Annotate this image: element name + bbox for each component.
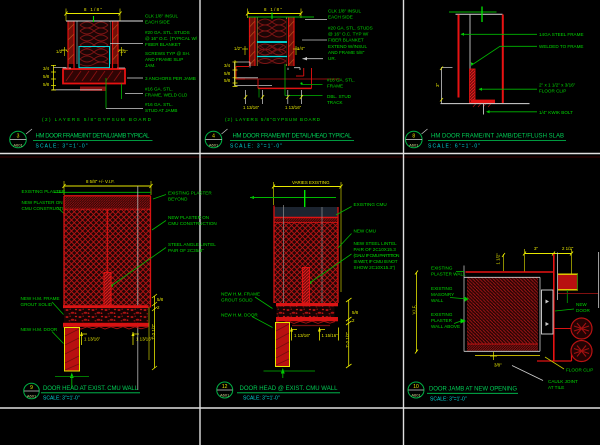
svg-text:FIBER BLANKET: FIBER BLANKET xyxy=(145,42,181,47)
svg-text:NEW H.M. DOOR: NEW H.M. DOOR xyxy=(21,327,58,332)
svg-text:7'-2 1/2": 7'-2 1/2" xyxy=(151,323,156,340)
svg-text:NEW PLASTER ON: NEW PLASTER ON xyxy=(22,200,63,205)
svg-text:JAM.: JAM. xyxy=(145,63,155,68)
svg-text:GROUT SOLID: GROUT SOLID xyxy=(221,298,253,303)
svg-text:UR.: UR. xyxy=(328,56,336,61)
svg-text:3/4: 3/4 xyxy=(224,63,231,68)
svg-text:1/4": 1/4" xyxy=(297,46,305,51)
svg-text:CMU CONSTRUCTION: CMU CONSTRUCTION xyxy=(168,221,217,226)
svg-text:#16 GA. STL.: #16 GA. STL. xyxy=(327,78,355,83)
svg-text:EXISTING PLASTER: EXISTING PLASTER xyxy=(22,189,66,194)
svg-text:FRAME, WELD CLD: FRAME, WELD CLD xyxy=(145,93,188,98)
svg-text:FIBER BLANKET: FIBER BLANKET xyxy=(328,38,364,43)
svg-text:4: 4 xyxy=(212,134,215,140)
svg-text:1 13/16": 1 13/16" xyxy=(84,337,101,342)
svg-text:NEW H.M. FRAME: NEW H.M. FRAME xyxy=(221,292,260,297)
svg-text:1 1/2": 1 1/2" xyxy=(496,253,501,265)
svg-text:8 5/8" +/- V.I.F.: 8 5/8" +/- V.I.F. xyxy=(86,179,115,184)
svg-text:5/8: 5/8 xyxy=(43,82,50,87)
svg-text:2" x 1 1/2" x 3/16": 2" x 1 1/2" x 3/16" xyxy=(539,83,576,88)
svg-text:CLK 1/8" INSUL: CLK 1/8" INSUL xyxy=(145,14,178,19)
svg-text:V.I.F.: V.I.F. xyxy=(412,305,417,315)
svg-text:EACH SIDE: EACH SIDE xyxy=(145,20,170,25)
svg-text:5/8: 5/8 xyxy=(43,74,50,79)
svg-text:2 1/2": 2 1/2" xyxy=(562,246,574,251)
svg-text:A601: A601 xyxy=(409,143,419,148)
svg-text:WALL: WALL xyxy=(431,298,444,303)
svg-text:STEEL ANGLE LINTEL: STEEL ANGLE LINTEL xyxy=(168,242,216,247)
svg-text:SCALE: 3"=1'-0": SCALE: 3"=1'-0" xyxy=(430,397,467,403)
svg-text:#16 GA. STL.: #16 GA. STL. xyxy=(145,87,173,92)
svg-text:3": 3" xyxy=(534,246,538,251)
svg-text:14GA STEEL FRAME: 14GA STEEL FRAME xyxy=(539,32,584,37)
svg-text:SCREWS TYP @ SH.: SCREWS TYP @ SH. xyxy=(145,51,190,56)
svg-text:3 ANCHORS PER JAMB: 3 ANCHORS PER JAMB xyxy=(145,76,196,81)
svg-text:10: 10 xyxy=(413,384,419,390)
svg-text:GROUT SOLID: GROUT SOLID xyxy=(21,302,53,307)
svg-text:EXISTING PLASTER: EXISTING PLASTER xyxy=(168,191,212,196)
svg-text:WELDED TO FRAME: WELDED TO FRAME xyxy=(539,44,584,49)
svg-text:3/8": 3/8" xyxy=(494,363,502,368)
svg-text:MASONRY: MASONRY xyxy=(431,292,454,297)
svg-text:5/8: 5/8 xyxy=(352,310,359,315)
svg-text:5/8: 5/8 xyxy=(224,71,231,76)
svg-text:A601: A601 xyxy=(27,394,37,399)
svg-text:EXISTING CMU: EXISTING CMU xyxy=(354,202,387,207)
svg-text:@ 16" O.C. TYP W/: @ 16" O.C. TYP W/ xyxy=(328,32,369,37)
svg-text:WALL ABOVE: WALL ABOVE xyxy=(431,324,460,329)
svg-text:TRACK: TRACK xyxy=(327,100,344,105)
svg-text:DOOR JAMB AT NEW OPENING: DOOR JAMB AT NEW OPENING xyxy=(429,387,517,393)
svg-text:IS WET, IF CMU IS NOT: IS WET, IF CMU IS NOT xyxy=(354,259,398,264)
svg-text:NEW CMU: NEW CMU xyxy=(354,229,376,234)
svg-text:SCALE: 6"=1'-0": SCALE: 6"=1'-0" xyxy=(428,144,480,150)
svg-text:AND FRAME SLIP: AND FRAME SLIP xyxy=(145,57,183,62)
svg-text:DOOR: DOOR xyxy=(576,308,590,313)
svg-text:FRAME: FRAME xyxy=(327,84,343,89)
svg-text:(2) LAYERS 5/8"GYPSUM BOARD: (2) LAYERS 5/8"GYPSUM BOARD xyxy=(225,117,321,122)
svg-text:SCALE: 3"=1'-0": SCALE: 3"=1'-0" xyxy=(243,396,280,402)
svg-text:SHOW 2C10X15.3"): SHOW 2C10X15.3") xyxy=(354,265,396,270)
svg-text:NEW: NEW xyxy=(576,302,587,307)
svg-text:A601: A601 xyxy=(220,393,230,398)
svg-text:NEW H.M. FRAME: NEW H.M. FRAME xyxy=(21,296,60,301)
svg-text:A601: A601 xyxy=(209,143,219,148)
svg-text:EXISTING: EXISTING xyxy=(431,286,453,291)
svg-text:(2) LAYERS 5/8"GYPSUM BOARD: (2) LAYERS 5/8"GYPSUM BOARD xyxy=(42,117,152,122)
svg-text:VARIES EXISTING: VARIES EXISTING xyxy=(292,180,330,185)
svg-text:NEW PLASTER ON: NEW PLASTER ON xyxy=(168,215,209,220)
svg-text:1/2": 1/2" xyxy=(234,46,242,51)
svg-text:EACH SIDE: EACH SIDE xyxy=(328,15,353,20)
svg-text:FLOOR CLIP: FLOOR CLIP xyxy=(566,368,593,373)
svg-text:HM DOOR FRAME/INT JAMB/DET/FLU: HM DOOR FRAME/INT JAMB/DET/FLUSH SLAB xyxy=(431,134,564,140)
svg-text:1/4" KWIK BOLT: 1/4" KWIK BOLT xyxy=(539,110,573,115)
svg-text:7'-2 1/2": 7'-2 1/2" xyxy=(345,331,350,348)
svg-text:A601: A601 xyxy=(411,393,421,398)
svg-text:#20 GA. STL. STUDS: #20 GA. STL. STUDS xyxy=(328,26,373,31)
svg-text:12: 12 xyxy=(222,384,228,390)
svg-text:5/8: 5/8 xyxy=(157,297,164,302)
svg-text:STUD AT JAMB: STUD AT JAMB xyxy=(145,108,178,113)
svg-text:AT TILE: AT TILE xyxy=(548,385,564,390)
svg-text:5/8: 5/8 xyxy=(224,78,231,83)
svg-text:8: 8 xyxy=(412,134,415,140)
svg-text:FLOOR CLIP: FLOOR CLIP xyxy=(539,89,566,94)
svg-text:PLASTER WALL: PLASTER WALL xyxy=(431,272,466,277)
svg-text:3": 3" xyxy=(435,83,440,87)
svg-text:1 13/16": 1 13/16" xyxy=(294,333,311,338)
svg-text:CLK 1/8" INSUL: CLK 1/8" INSUL xyxy=(328,9,361,14)
svg-text:SCALE: 3"=1'-0": SCALE: 3"=1'-0" xyxy=(36,144,88,150)
svg-text:HM DOOR FRAME/INT DETAIL/JAMB: HM DOOR FRAME/INT DETAIL/JAMB TYPICAL xyxy=(36,134,151,140)
svg-text:CAULK JOINT: CAULK JOINT xyxy=(548,379,578,384)
svg-text:DOOR HEAD @ EXIST. CMU WALL: DOOR HEAD @ EXIST. CMU WALL xyxy=(240,386,339,392)
svg-text:1 13/16": 1 13/16" xyxy=(243,105,260,110)
svg-text:SCALE: 3"=1'-0": SCALE: 3"=1'-0" xyxy=(230,144,282,150)
svg-text:HM DOOR FRAME/INT DETAIL/HEAD: HM DOOR FRAME/INT DETAIL/HEAD TYPICAL xyxy=(233,134,353,140)
svg-text:9: 9 xyxy=(30,385,33,391)
svg-text:EXTEND W/INSUL: EXTEND W/INSUL xyxy=(328,44,367,49)
svg-text:(GALV. IF CMU PARTITION: (GALV. IF CMU PARTITION xyxy=(354,253,400,258)
svg-text:DOOR HEAD AT EXIST. CMU WALL: DOOR HEAD AT EXIST. CMU WALL xyxy=(43,386,139,392)
svg-text:NEW STEEL LINTEL: NEW STEEL LINTEL xyxy=(354,241,398,246)
svg-text:EXISTING: EXISTING xyxy=(431,266,453,271)
svg-text:SCALE: 3"=1'-0": SCALE: 3"=1'-0" xyxy=(43,396,80,402)
svg-text:3: 3 xyxy=(17,134,20,140)
svg-text:1 13/16": 1 13/16" xyxy=(285,105,302,110)
svg-text:PAIR OF 2C35/8": PAIR OF 2C35/8" xyxy=(168,248,204,253)
svg-text:A601: A601 xyxy=(13,143,23,148)
svg-text:@ 16" O.C. (TYPICAL W/: @ 16" O.C. (TYPICAL W/ xyxy=(145,36,198,41)
svg-text:3/4: 3/4 xyxy=(43,66,50,71)
svg-text:PAIR OF 2C10X15.3: PAIR OF 2C10X15.3 xyxy=(354,247,397,252)
svg-text:EXISTING: EXISTING xyxy=(431,312,453,317)
svg-text:#20 GA. STL. STUDS: #20 GA. STL. STUDS xyxy=(145,30,190,35)
svg-text:#16 GA. STL.: #16 GA. STL. xyxy=(145,102,173,107)
svg-text:1 15/16": 1 15/16" xyxy=(322,333,339,338)
svg-text:AND FRAME 5/8": AND FRAME 5/8" xyxy=(328,50,365,55)
svg-text:CMU CONSTRUCTION: CMU CONSTRUCTION xyxy=(22,206,71,211)
svg-text:DBL. STUD: DBL. STUD xyxy=(327,94,352,99)
svg-text:BEYOND: BEYOND xyxy=(168,197,188,202)
svg-text:PLASTER: PLASTER xyxy=(431,318,453,323)
